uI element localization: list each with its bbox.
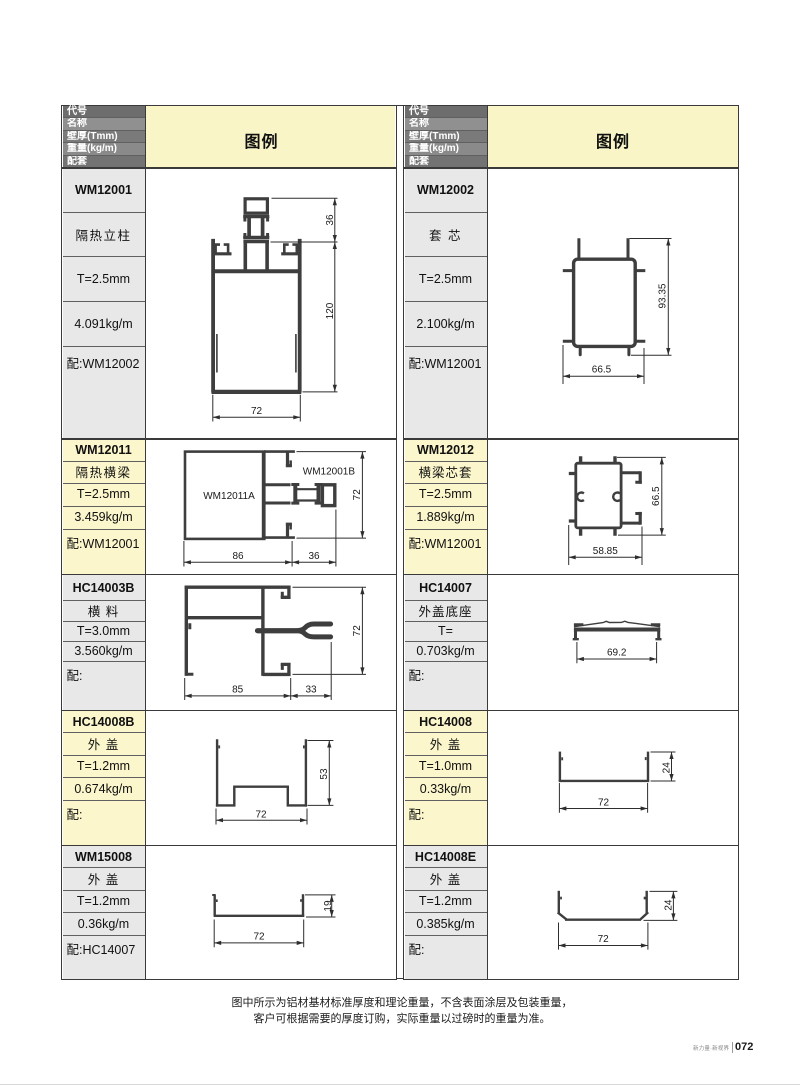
svg-text:86: 86 [232,550,244,561]
svg-text:69.2: 69.2 [607,647,627,658]
svg-text:72: 72 [253,932,265,943]
svg-text:24: 24 [662,762,673,774]
svg-text:36: 36 [308,550,320,561]
svg-text:19: 19 [323,900,334,912]
svg-text:85: 85 [232,684,244,695]
svg-text:72: 72 [598,934,610,945]
svg-text:120: 120 [325,302,336,319]
svg-text:WM12001B: WM12001B [303,466,356,477]
svg-text:24: 24 [663,899,674,911]
svg-text:WM12011A: WM12011A [203,491,255,502]
svg-text:72: 72 [352,488,363,500]
svg-text:58.85: 58.85 [593,545,618,556]
svg-text:66.5: 66.5 [592,365,612,376]
svg-text:33: 33 [305,684,317,695]
svg-text:72: 72 [251,406,263,417]
svg-text:36: 36 [325,214,336,226]
svg-text:72: 72 [598,797,610,808]
svg-text:72: 72 [352,624,363,636]
svg-text:72: 72 [255,809,267,820]
svg-text:53: 53 [319,768,330,780]
svg-text:66.5: 66.5 [651,486,662,506]
svg-text:93.35: 93.35 [658,283,669,308]
